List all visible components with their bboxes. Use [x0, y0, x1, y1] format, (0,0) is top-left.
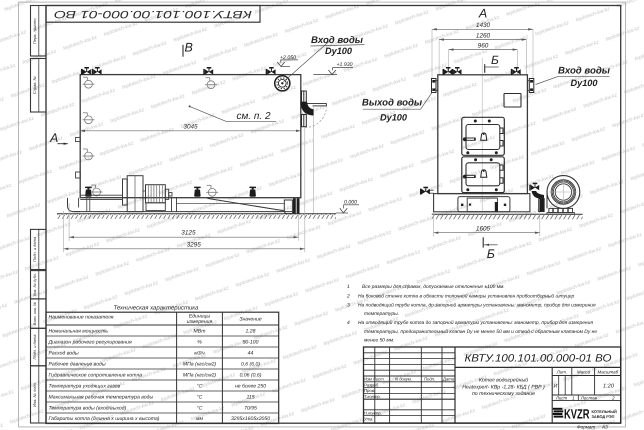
svg-text:Лит.: Лит. [556, 369, 567, 374]
svg-text:Наименование показателя: Наименование показателя [49, 315, 114, 321]
svg-text:На отводящий трубе котла до за: На отводящий трубе котла до запорной арм… [358, 320, 593, 326]
svg-text:Дата: Дата [442, 377, 455, 382]
svg-text:%: % [197, 339, 202, 345]
svg-text:Значение: Значение [239, 317, 262, 323]
svg-text:см. п. 2: см. п. 2 [237, 111, 271, 122]
svg-text:Подп. и дата: Подп. и дата [32, 236, 37, 262]
svg-text:Н.контр.: Н.контр. [364, 410, 382, 415]
svg-text:115: 115 [246, 394, 254, 400]
svg-text:1: 1 [347, 284, 350, 290]
svg-text:Техническая характеристика: Техническая характеристика [114, 305, 200, 312]
svg-text:Перв. примен.: Перв. примен. [32, 17, 37, 44]
svg-text:Пров.: Пров. [364, 388, 375, 393]
svg-text:°С: °С [197, 405, 203, 411]
svg-text:N докум.: N докум. [395, 377, 412, 382]
svg-text:Гидравлическое сопротивление к: Гидравлическое сопротивление котла [49, 372, 143, 378]
svg-text:Взам. инв. №: Взам. инв. № [33, 302, 37, 325]
svg-text:1430: 1430 [476, 22, 491, 29]
svg-text:Разраб.: Разраб. [364, 382, 379, 387]
svg-text:КВТУ.100.101.00.000-01 ВО: КВТУ.100.101.00.000-01 ВО [54, 8, 252, 20]
svg-text:Вход воды: Вход воды [311, 35, 364, 46]
svg-text:3295: 3295 [187, 241, 202, 248]
svg-text:А3: А3 [601, 424, 608, 429]
svg-text:А: А [49, 131, 58, 145]
svg-text:Dy100: Dy100 [325, 46, 353, 56]
svg-text:Утв.: Утв. [364, 417, 374, 422]
svg-text:Б: Б [487, 247, 495, 261]
svg-text:Номинальная мощность: Номинальная мощность [49, 328, 109, 334]
svg-text:Листов: Листов [580, 395, 598, 400]
svg-text:Габариты котла (длинна х ширин: Габариты котла (длинна х ширина х высота… [49, 416, 160, 422]
svg-text:0,06 (0,6): 0,06 (0,6) [240, 372, 262, 378]
svg-text:Расход воды: Расход воды [49, 350, 79, 356]
svg-text:КВТУ.100.101.00.000-01 ВО: КВТУ.100.101.00.000-01 ВО [465, 352, 612, 364]
svg-text:2: 2 [611, 395, 615, 400]
svg-text:Диапазон рабочего регулировани: Диапазон рабочего регулирования [48, 339, 132, 345]
svg-text:44: 44 [248, 350, 254, 356]
svg-text:1605: 1605 [476, 225, 491, 232]
svg-text:температуры.: температуры. [364, 312, 399, 317]
svg-text:Рабочее давление воды: Рабочее давление воды [49, 361, 106, 367]
svg-text:3295х1605х2050: 3295х1605х2050 [231, 416, 270, 422]
svg-text:°С: °С [197, 394, 203, 400]
svg-text:Максимальная рабочая температу: Максимальная рабочая температура воды [49, 394, 154, 400]
svg-text:Dy100: Dy100 [380, 113, 408, 123]
svg-text:50-100: 50-100 [243, 339, 259, 345]
svg-text:KVZR: KVZR [564, 407, 590, 422]
svg-text:Температура уходящих газов: Температура уходящих газов [49, 383, 121, 389]
svg-text:0,6 (6,0): 0,6 (6,0) [241, 361, 260, 367]
svg-text:м3/ч: м3/ч [194, 350, 205, 356]
svg-text:Формат: Формат [577, 424, 595, 429]
svg-text:МПа (кгс/см2): МПа (кгс/см2) [183, 361, 217, 367]
svg-text:Температура воды (вход/выход): Температура воды (вход/выход) [49, 405, 127, 411]
svg-text:Котел водогрейный: Котел водогрейный [479, 378, 528, 384]
svg-text:Подп. и дата: Подп. и дата [32, 334, 37, 360]
svg-text:4: 4 [347, 320, 350, 326]
svg-text:Вход воды: Вход воды [558, 66, 611, 77]
svg-text:1260: 1260 [476, 32, 491, 39]
svg-text:Dy100: Dy100 [570, 78, 598, 88]
svg-text:менее 50 мм.: менее 50 мм. [364, 338, 394, 344]
svg-text:не более 250: не более 250 [235, 383, 266, 389]
svg-text:3125: 3125 [181, 230, 196, 237]
svg-text:Справ. №: Справ. № [32, 75, 37, 94]
svg-text:ЗАВОД РЭП: ЗАВОД РЭП [592, 414, 615, 419]
svg-text:Heatexpert- КВр -1,28- КБД ( Р: Heatexpert- КВр -1,28- КБД ( РВР ) [462, 384, 545, 390]
svg-text:°С: °С [197, 383, 203, 389]
svg-text:температуры, предохранительный: температуры, предохранительный клапан Dу… [364, 329, 597, 335]
svg-text:Масштаб: Масштаб [598, 369, 619, 374]
svg-text:Лист: Лист [555, 395, 568, 400]
svg-text:960: 960 [478, 42, 489, 49]
svg-text:Инв. № подл.: Инв. № подл. [32, 382, 37, 407]
svg-text:Т.контр.: Т.контр. [364, 394, 381, 399]
svg-text:И: И [553, 384, 557, 390]
svg-text:Выход воды: Выход воды [362, 97, 423, 108]
svg-text:3: 3 [347, 302, 350, 308]
svg-text:1,28: 1,28 [246, 328, 256, 334]
svg-text:Изм Лист: Изм Лист [364, 377, 384, 382]
svg-text:В: В [185, 41, 193, 55]
svg-text:На боковой стенке котла в обла: На боковой стенке котла в области топочн… [358, 293, 574, 299]
svg-text:мм: мм [196, 416, 203, 422]
svg-text:Все размеры для справок, допус: Все размеры для справок, допускаемые отк… [362, 284, 505, 290]
svg-text:МВт: МВт [194, 328, 206, 334]
svg-text:70/95: 70/95 [244, 405, 257, 411]
svg-text:3045: 3045 [183, 124, 198, 131]
svg-text:по техническому задание: по техническому задание [472, 391, 535, 397]
svg-text:+1.930: +1.930 [337, 62, 353, 68]
svg-text:МПа (кгс/см2): МПа (кгс/см2) [183, 372, 217, 378]
svg-text:2: 2 [346, 293, 350, 299]
svg-text:А: А [478, 7, 487, 21]
svg-text:Подп.: Подп. [424, 377, 435, 382]
svg-text:измерения: измерения [187, 319, 213, 325]
svg-text:Б: Б [491, 53, 499, 67]
svg-text:Масса: Масса [577, 369, 591, 374]
svg-text:На подводящий трубе котла, д: На подводящий трубе котла, до запорной а… [358, 302, 596, 308]
svg-text:1:20: 1:20 [603, 384, 615, 390]
svg-text:Инв. № дубл.: Инв. № дубл. [33, 273, 37, 296]
